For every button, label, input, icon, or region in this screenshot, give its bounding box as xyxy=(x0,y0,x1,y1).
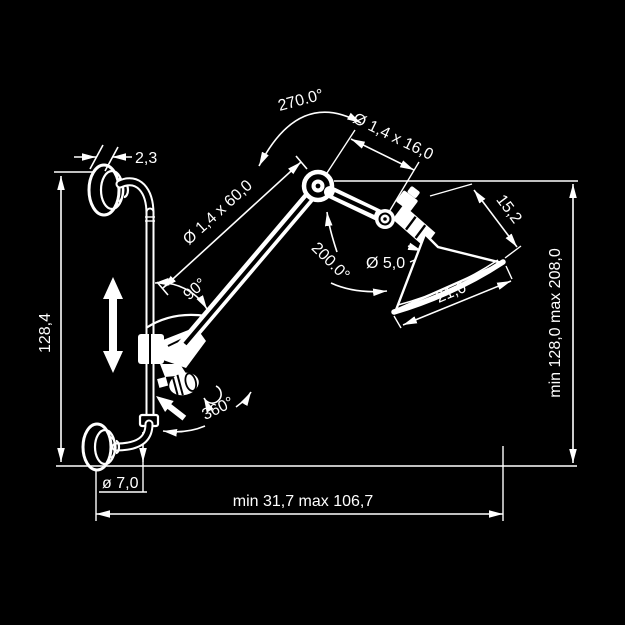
rotate-icon xyxy=(204,386,221,403)
head-joint xyxy=(375,209,395,229)
label-rail-length: 128,4 xyxy=(37,313,54,353)
label-270-rotation: 270.0° xyxy=(276,86,325,114)
wall-bracket-top xyxy=(89,165,150,215)
dim-height-range: min 128,0 max 208,0 xyxy=(334,181,578,463)
label-stem-diameter: Ø 5,0 xyxy=(366,255,405,272)
dim-200-rotation: 200.0° xyxy=(308,212,387,292)
label-tube-diameter: ø 7,0 xyxy=(102,475,139,492)
label-plate-thickness: 2,3 xyxy=(135,150,157,167)
arrow-slide-vertical xyxy=(103,277,123,373)
dim-270-rotation: 270.0° xyxy=(259,86,361,166)
label-200-rotation: 200.0° xyxy=(308,239,353,284)
dim-90-angle: 90° xyxy=(155,275,210,309)
technical-drawing: 2,3 128,4 min 31,7 max 106,7 ø 7,0 min 1… xyxy=(0,0,625,625)
label-upper-arm: Ø 1,4 x 16,0 xyxy=(350,110,436,164)
label-reach-range: min 31,7 max 106,7 xyxy=(233,493,374,510)
lower-arm xyxy=(181,189,316,348)
dim-shade-depth: 15,2 xyxy=(430,184,525,258)
dim-plate-thickness: 2,3 xyxy=(74,145,157,171)
dim-rail-length: 128,4 xyxy=(37,172,94,462)
dim-reach-range: min 31,7 max 106,7 xyxy=(96,446,503,521)
label-height-range: min 128,0 max 208,0 xyxy=(547,248,564,398)
label-90-angle: 90° xyxy=(180,275,209,304)
vertical-rail xyxy=(140,212,158,426)
upper-arm xyxy=(330,192,378,215)
wall-bracket-bottom xyxy=(83,424,149,470)
